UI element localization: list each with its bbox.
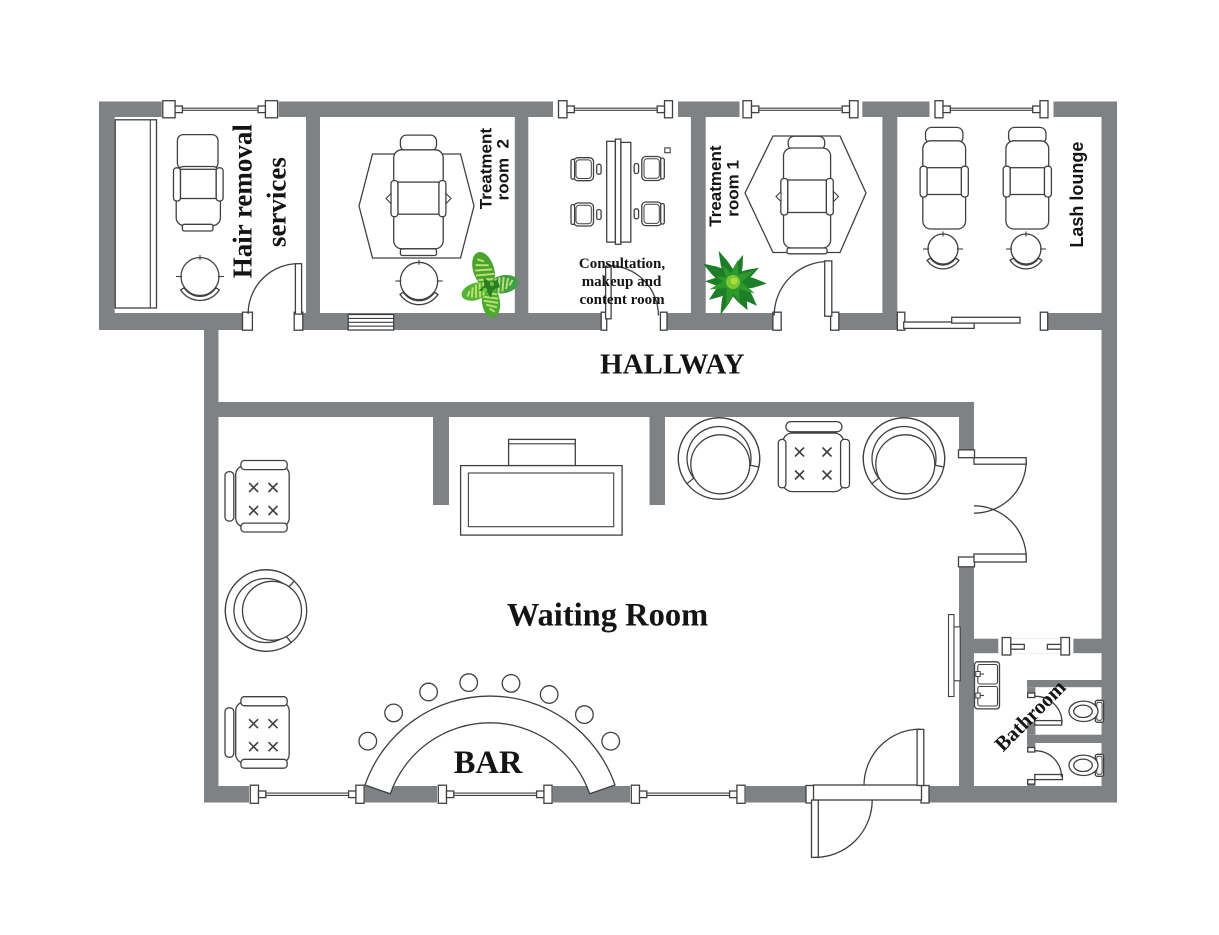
svg-text:content room: content room <box>579 292 665 308</box>
svg-text:Treatment: Treatment <box>476 128 495 210</box>
svg-text:Lash lounge: Lash lounge <box>1067 142 1087 248</box>
svg-text:HALLWAY: HALLWAY <box>600 349 745 381</box>
svg-text:makeup and: makeup and <box>582 274 662 290</box>
svg-text:Treatment: Treatment <box>706 145 725 227</box>
svg-text:BAR: BAR <box>454 745 523 781</box>
svg-text:room 2: room 2 <box>494 139 513 200</box>
svg-text:Hair removal: Hair removal <box>228 124 258 279</box>
svg-text:Waiting Room: Waiting Room <box>507 598 708 634</box>
svg-text:Consultation,: Consultation, <box>579 256 666 272</box>
svg-text:room 1: room 1 <box>723 160 742 217</box>
svg-text:services: services <box>262 157 292 247</box>
